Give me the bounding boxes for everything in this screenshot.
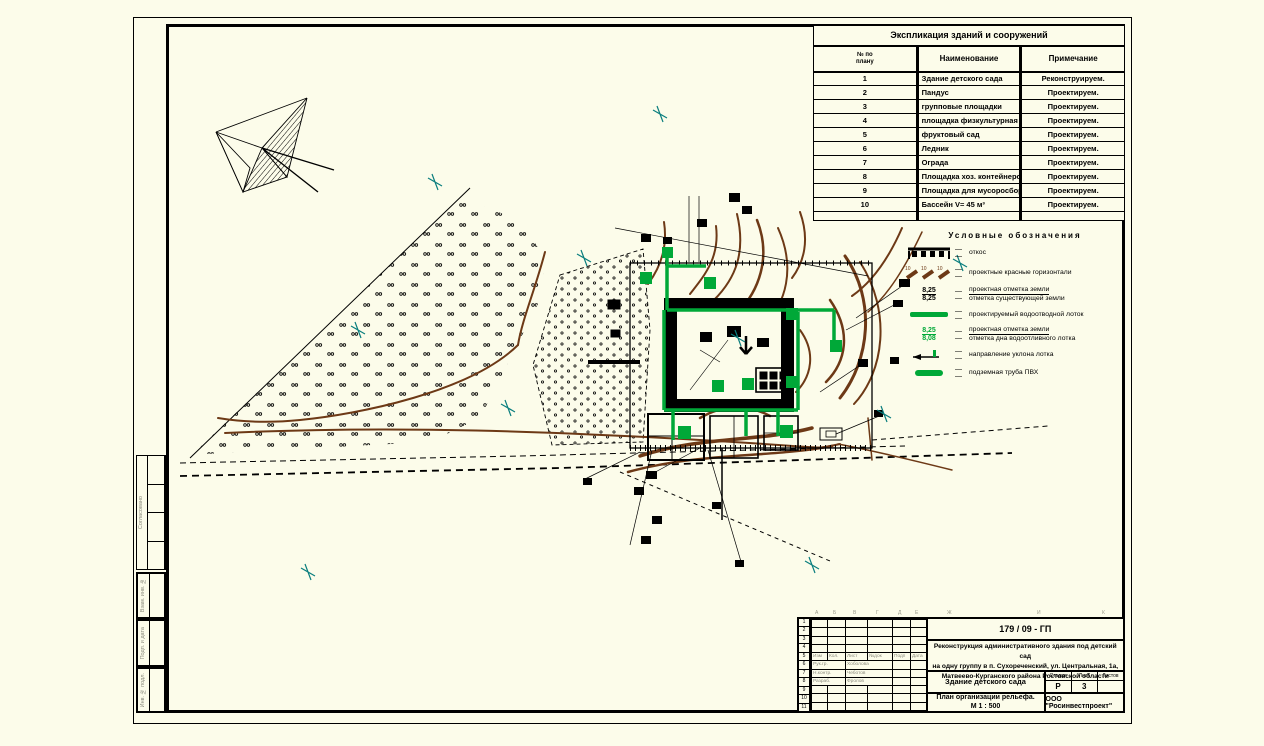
legend-item-drain-channel: — — проектируемый водоотводной лоток [903,308,1127,322]
object-name: Здание детского сада [928,672,1046,692]
drain-channel-symbol [903,312,955,317]
legend-item-elevation-black: 8,25 8,25 — — проектная отметка земли от… [903,286,1127,304]
pvc-pipe-symbol [903,370,955,376]
svg-text:10: 10 [937,266,943,272]
elevation-mark-symbol: 8,25 8,25 [903,287,955,302]
podp-label: Подп. и дата [141,627,147,659]
table-row: 9Площадка для мусоросборникаПроектируем. [814,184,1125,198]
sheet-value: 3 [1072,681,1098,692]
vegetation-field-left [192,198,545,455]
table-row: 1Здание детского садаРеконструируем. [814,72,1125,86]
slope-direction-arrow-icon [903,349,955,361]
approved-label: Согласовано [139,496,145,529]
side-stamp-inv: Инв. № подл. [136,667,166,713]
vzam-label: Взам. инв. № [141,578,147,612]
table-row: 8Площадка хоз. контейнеровПроектируем. [814,170,1125,184]
slope-symbol-icon [903,246,955,260]
signature-row: Разраб. Фролов [812,677,927,685]
table-row: 10Бассейн V= 45 м³Проектируем. [814,198,1125,212]
svg-text:10: 10 [905,266,911,272]
title-block-row-numbers: 1 2 3 4 5 6 7 8 9 10 11 [799,619,811,711]
signature-header-row: ИзмКол. Лист№док ПодпДата [812,653,927,661]
signature-row: Рук.гр. Хоболова [812,661,927,669]
kindergarten-building [664,298,794,412]
legend-item-slope-direction: — — направление уклона лотка [903,348,1127,362]
col-note: Примечание [1021,46,1125,72]
drawing-title: План организации рельефа. М 1 : 500 [928,694,1046,711]
title-block-grid-letters: А Б В Г Д Е Ж И К [797,610,1125,617]
vegetation-field-right [533,249,650,445]
approved-grid-cells [148,456,165,569]
inv-label: Инв. № подл. [141,673,147,707]
legend-item-elevation-green: 8,25 8,08 — — проектная отметка земли от… [903,326,1127,344]
side-stamp-podp: Подп. и дата [136,619,166,667]
table-row: 2ПандусПроектируем. [814,86,1125,100]
svg-text:10: 10 [921,266,927,272]
col-num: № по плану [814,46,918,72]
legend-leader: — — [955,366,969,380]
legend-leader: — — [955,266,969,280]
legend-leader: — — [955,246,969,260]
explication-title: Экспликация зданий и сооружений [814,26,1125,46]
drain-elevation-symbol: 8,25 8,08 [903,327,955,342]
legend-leader: — — [955,348,969,362]
legend-leader: — — [955,328,969,342]
stage-label: Стадия [1046,672,1072,680]
sheets-value [1098,681,1123,692]
signature-grid: ИзмКол. Лист№док ПодпДата Рук.гр. Хоболо… [811,619,928,711]
side-stamp-vzam: Взам. инв. № [136,572,166,619]
table-row: 3групповые площадкиПроектируем. [814,100,1125,114]
title-block-main: 179 / 09 - ГП Реконструкция администрати… [928,619,1124,711]
wind-rose-icon [216,98,334,192]
signature-row: Н.контр. Чеботов [812,669,927,677]
table-row: 7ОградаПроектируем. [814,156,1125,170]
contours-symbol-icon: 10 10 10 [903,264,955,282]
explication-table: Экспликация зданий и сооружений № по пла… [813,25,1125,221]
legend-title: Условные обозначения [903,231,1127,240]
title-block: 1 2 3 4 5 6 7 8 9 10 11 ИзмКол. Лист№док… [797,617,1125,713]
table-row-empty [814,212,1125,221]
stage-sheet-block: Стадия Лист Листов Р 3 [1046,672,1124,692]
legend-leader: — — [955,308,969,322]
sheet-label: Лист [1072,672,1098,680]
document-number: 179 / 09 - ГП [928,619,1124,641]
stage-value: Р [1046,681,1072,692]
legend-item-slope: — — откос [903,246,1127,260]
table-row: 6ЛедникПроектируем. [814,142,1125,156]
col-name: Наименование [917,46,1021,72]
legend: Условные обозначения — — откос [903,231,1127,384]
table-row: 4площадка физкультурнаяПроектируем. [814,114,1125,128]
drawing-sheet: Согласовано Взам. инв. № Подп. и дата Ин… [0,0,1264,746]
legend-leader: — — [955,288,969,302]
sheets-label: Листов [1098,672,1123,680]
side-stamp-approved-grid: Согласовано [136,455,166,570]
company-name: ООО "Росинвестпроект" [1046,694,1124,711]
project-description: Реконструкция административного здания п… [928,641,1124,672]
table-row: 5фруктовый садПроектируем. [814,128,1125,142]
legend-item-pvc-pipe: — — подземная труба ПВХ [903,366,1127,380]
legend-item-contours: 10 10 10 — — проектные красные горизонта… [903,264,1127,282]
explication-header: № по плану Наименование Примечание [814,46,1125,72]
